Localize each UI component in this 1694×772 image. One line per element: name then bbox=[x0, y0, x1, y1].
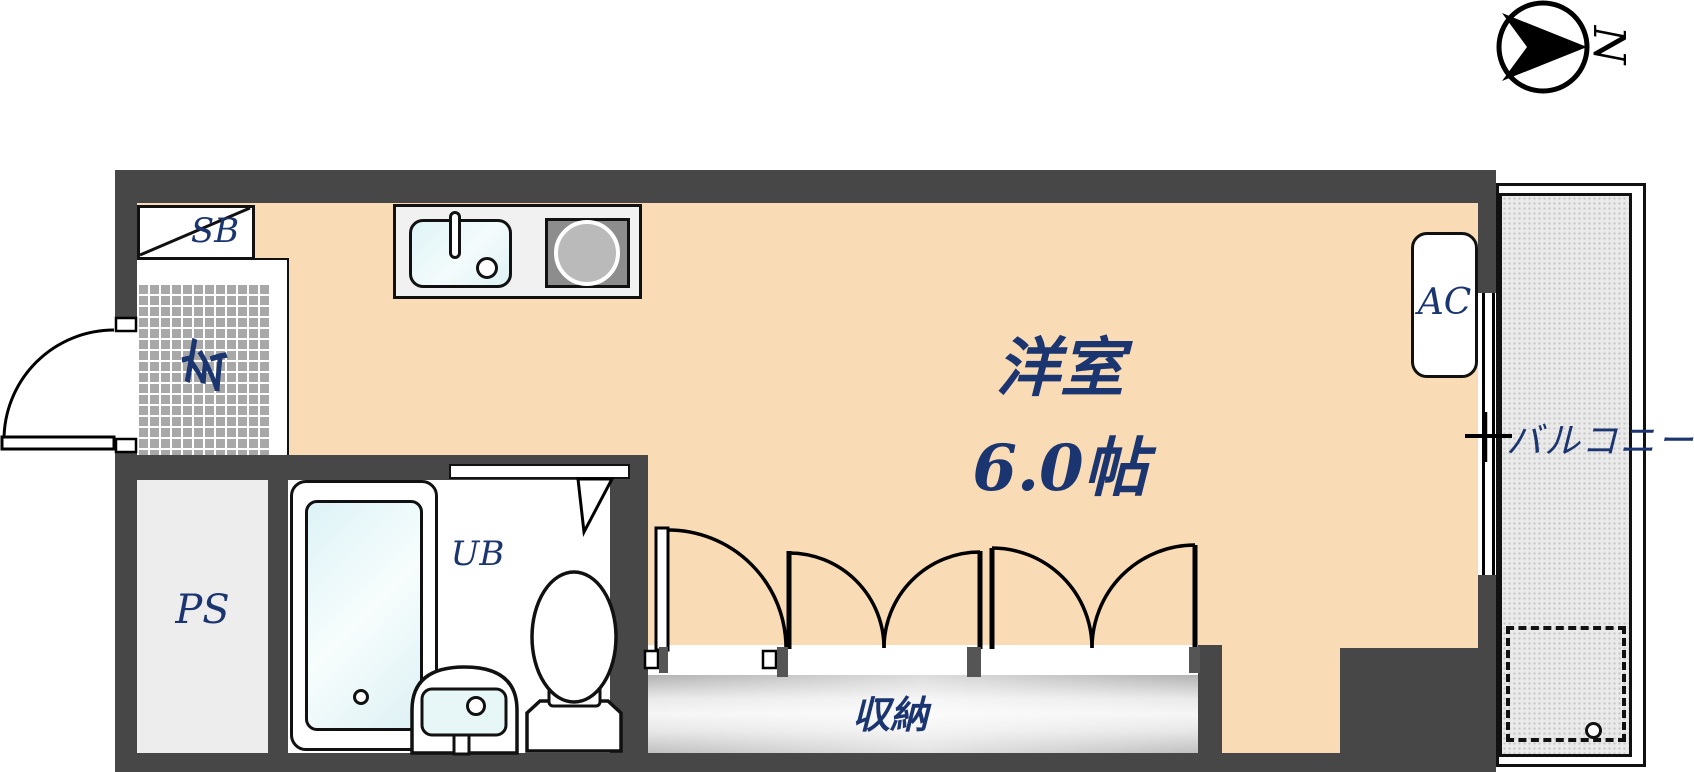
sink-drain-icon bbox=[476, 257, 498, 279]
outer-wall-bottom bbox=[115, 753, 1340, 772]
washer-pan-dashed-outline bbox=[1506, 626, 1626, 742]
main-room-name: 洋室 bbox=[910, 324, 1210, 402]
outer-wall-left-lower bbox=[115, 448, 137, 772]
balcony-drain-icon bbox=[1585, 722, 1602, 739]
compass-needle-icon bbox=[1502, 13, 1587, 81]
outer-wall-top bbox=[115, 170, 1496, 203]
bathtub-drain-icon bbox=[353, 689, 369, 705]
ac-label: AC bbox=[1411, 272, 1478, 332]
unit-bath-label: UB bbox=[430, 530, 525, 578]
closet-side-wall bbox=[1198, 645, 1222, 772]
outer-wall-left-upper bbox=[115, 170, 137, 318]
balcony-label: バルコニー bbox=[1506, 416, 1694, 460]
main-room-size: 6.0帖 bbox=[905, 422, 1215, 504]
north-label: N bbox=[1586, 22, 1632, 68]
north-compass bbox=[1499, 3, 1587, 91]
outer-wall-right-upper bbox=[1478, 170, 1496, 293]
entrance-label: 玄 bbox=[142, 312, 258, 428]
shoe-box-label: SB bbox=[170, 208, 260, 254]
pipe-space-label: PS bbox=[150, 585, 255, 635]
floor-plan: SB 玄 PS UB 収納 洋室 6.0帖 AC バルコニー N bbox=[0, 0, 1694, 772]
unit-bath-door bbox=[449, 464, 630, 479]
stove-burner-icon bbox=[554, 220, 620, 286]
wall-block-bottom-right bbox=[1340, 648, 1496, 772]
closet-door-track bbox=[648, 645, 1198, 675]
storage-label: 収納 bbox=[790, 688, 990, 734]
sink-faucet-icon bbox=[449, 211, 461, 259]
entrance-door bbox=[2, 318, 136, 452]
